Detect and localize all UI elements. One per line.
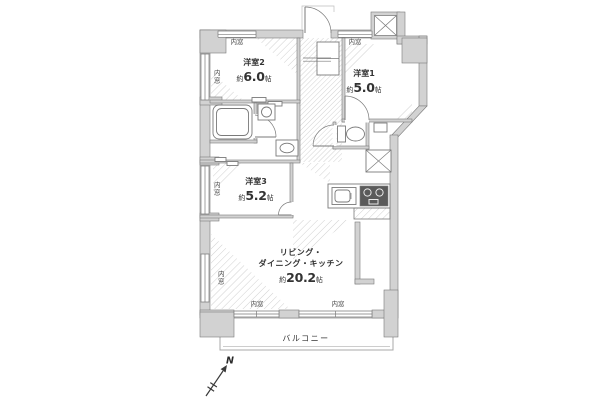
front-door-arc <box>305 7 331 33</box>
toilet-icon <box>338 126 365 142</box>
room1-size: 約 5.0 帖 <box>346 82 381 95</box>
ldk-size-prefix: 約 <box>279 277 286 284</box>
room1-name: 洋室1 <box>353 70 375 78</box>
bathtub-icon <box>213 105 252 139</box>
hand-basin-icon <box>374 123 387 132</box>
window-room3-left <box>201 166 210 214</box>
pipe-shaft-icon-2 <box>366 150 391 172</box>
window-living-left <box>201 254 210 302</box>
room1-door-arc <box>345 96 369 120</box>
room1-size-value: 5.0 <box>353 82 374 95</box>
room3-name: 洋室3 <box>245 178 267 186</box>
pillar-bottom-left <box>200 312 234 337</box>
window-room2-top <box>218 31 256 38</box>
front-door <box>302 6 334 33</box>
washbasin-icon <box>276 140 298 156</box>
room1-door <box>345 96 369 123</box>
window-label-bottom-left: 内窓 <box>251 301 264 308</box>
shoe-cabinet <box>317 42 339 75</box>
room2-size-value: 6.0 <box>243 71 264 84</box>
washing-machine-icon <box>258 104 275 120</box>
window-label-room2-left: 内窓 <box>213 70 220 85</box>
window-living-bottom-left <box>234 311 279 318</box>
room3-size-value: 5.2 <box>245 190 266 203</box>
room2-size: 約 6.0 帖 <box>236 71 271 84</box>
ldk-name-line1: リビング・ <box>280 249 323 257</box>
stove-icon <box>360 186 388 206</box>
room2-size-prefix: 約 <box>236 76 243 83</box>
kitchen-sink-icon <box>332 188 356 205</box>
window-living-bottom-right <box>299 311 372 318</box>
kitchen-counter <box>328 184 390 208</box>
room3-size: 約 5.2 帖 <box>238 190 273 203</box>
north-arrow-icon <box>206 365 227 396</box>
floor-plan: 洋室2 約 6.0 帖 洋室1 約 5.0 帖 洋室3 約 5.2 帖 リビング… <box>0 0 600 400</box>
room3-door <box>279 202 294 215</box>
refrigerator-space <box>354 208 390 219</box>
pipe-shaft-icon <box>375 16 397 36</box>
room3-size-unit: 帖 <box>267 195 274 202</box>
window-room2-left <box>201 54 210 100</box>
room2-name: 洋室2 <box>243 59 265 67</box>
pillar-top-right <box>402 38 427 63</box>
ldk-size: 約 20.2 帖 <box>279 272 323 285</box>
ldk-size-unit: 帖 <box>316 277 323 284</box>
window-label-room1-top: 内窓 <box>349 39 362 46</box>
window-label-bottom-right: 内窓 <box>332 301 345 308</box>
window-label-room3-left: 内窓 <box>213 182 220 197</box>
north-label: N <box>226 356 234 366</box>
room3-size-prefix: 約 <box>238 195 245 202</box>
pier-bottom-center <box>279 310 299 318</box>
room1-size-unit: 帖 <box>375 87 382 94</box>
kitchen-partial-wall <box>355 222 360 284</box>
pillar-bottom-right <box>384 290 398 337</box>
window-label-room2-top: 内窓 <box>231 39 244 46</box>
window-label-living-left: 内窓 <box>217 271 224 286</box>
ldk-name-line2: ダイニング・キッチン <box>259 260 344 268</box>
room2-size-unit: 帖 <box>265 76 272 83</box>
room1-size-prefix: 約 <box>346 87 353 94</box>
ldk-size-value: 20.2 <box>286 272 316 285</box>
balcony-label: バルコニー <box>282 335 329 343</box>
window-room1-top <box>338 31 372 38</box>
